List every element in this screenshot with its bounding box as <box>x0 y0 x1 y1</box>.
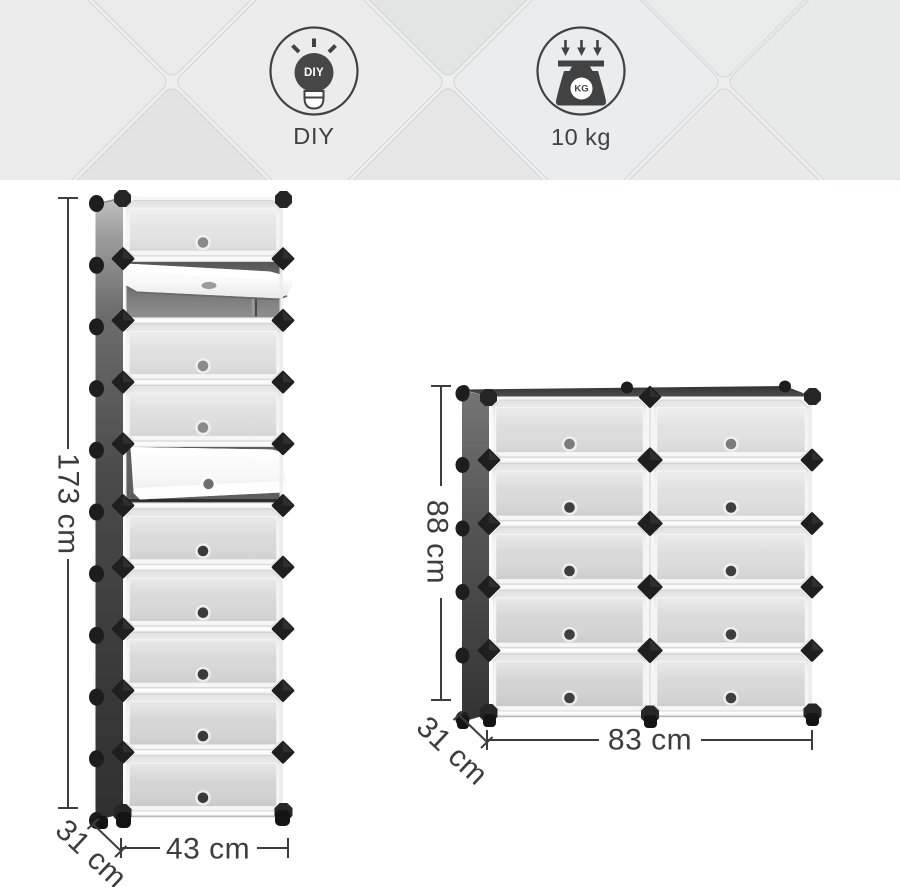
svg-text:10 kg: 10 kg <box>551 124 611 150</box>
svg-text:KG: KG <box>574 84 588 95</box>
svg-text:88 cm: 88 cm <box>421 500 454 584</box>
svg-text:173 cm: 173 cm <box>52 453 85 554</box>
svg-text:43 cm: 43 cm <box>166 833 250 866</box>
svg-text:DIY: DIY <box>293 123 335 149</box>
svg-text:DIY: DIY <box>304 67 324 79</box>
svg-text:83 cm: 83 cm <box>608 724 692 757</box>
